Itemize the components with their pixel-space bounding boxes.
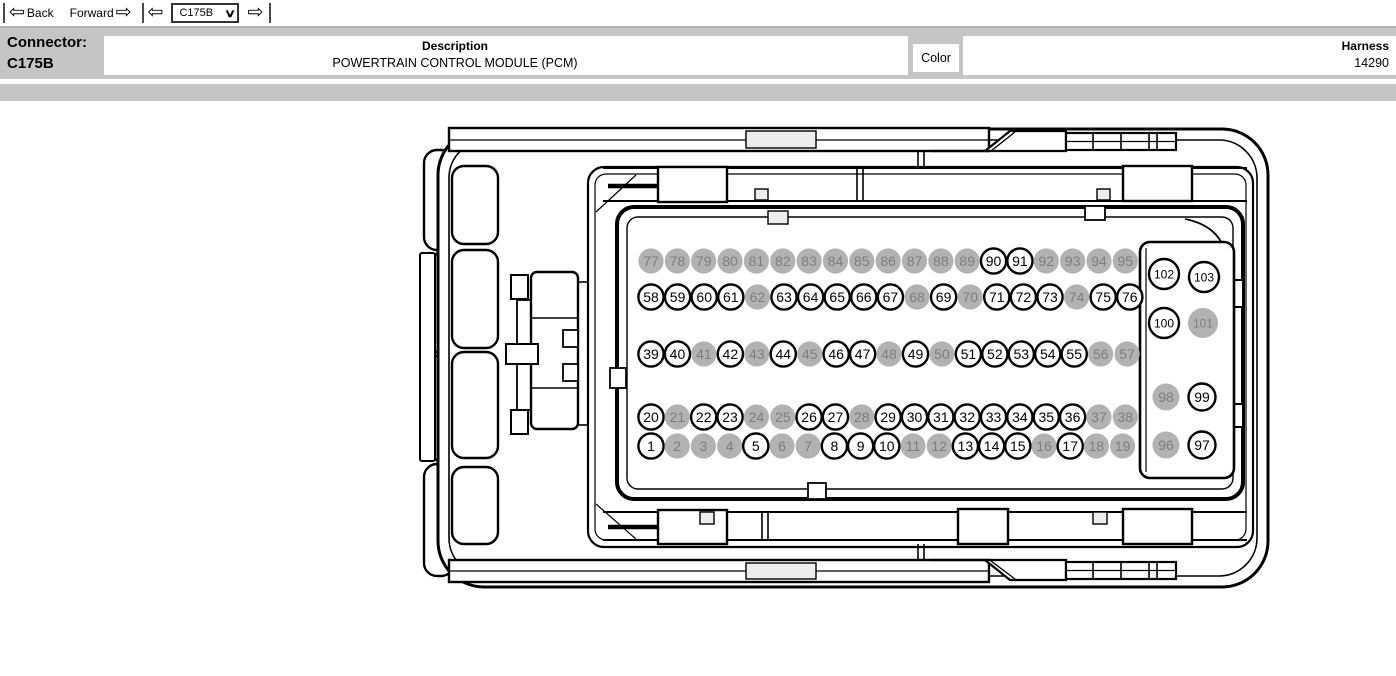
connector-label: Connector: bbox=[7, 32, 87, 53]
svg-text:69: 69 bbox=[936, 289, 952, 305]
back-label: Back bbox=[27, 6, 54, 20]
pin-96: 96 bbox=[1153, 432, 1180, 459]
pin-44: 44 bbox=[771, 341, 796, 366]
svg-text:12: 12 bbox=[931, 438, 947, 454]
pin-86: 86 bbox=[876, 248, 901, 273]
svg-text:76: 76 bbox=[1122, 289, 1138, 305]
pin-26: 26 bbox=[797, 404, 822, 429]
svg-text:100: 100 bbox=[1154, 316, 1174, 330]
svg-text:2: 2 bbox=[673, 438, 681, 454]
pin-25: 25 bbox=[770, 404, 795, 429]
pin-45: 45 bbox=[797, 341, 822, 366]
svg-text:55: 55 bbox=[1066, 346, 1082, 362]
svg-text:66: 66 bbox=[856, 289, 872, 305]
pin-74: 74 bbox=[1064, 284, 1089, 309]
description-value: POWERTRAIN CONTROL MODULE (PCM) bbox=[104, 56, 806, 70]
pin-97: 97 bbox=[1189, 432, 1216, 459]
svg-text:54: 54 bbox=[1040, 346, 1056, 362]
svg-text:30: 30 bbox=[907, 409, 923, 425]
pin-82: 82 bbox=[770, 248, 795, 273]
svg-text:75: 75 bbox=[1095, 289, 1111, 305]
pin-23: 23 bbox=[717, 404, 742, 429]
pin-14: 14 bbox=[979, 433, 1004, 458]
pin-50: 50 bbox=[929, 341, 954, 366]
pin-3: 3 bbox=[691, 433, 716, 458]
pin-91: 91 bbox=[1007, 248, 1032, 273]
pin-12: 12 bbox=[927, 433, 952, 458]
pin-32: 32 bbox=[955, 404, 980, 429]
svg-text:50: 50 bbox=[934, 346, 950, 362]
pin-35: 35 bbox=[1034, 404, 1059, 429]
pin-39: 39 bbox=[638, 341, 663, 366]
pin-69: 69 bbox=[931, 284, 956, 309]
svg-text:42: 42 bbox=[723, 346, 739, 362]
svg-text:32: 32 bbox=[959, 409, 975, 425]
color-box: Color bbox=[913, 44, 959, 72]
svg-text:43: 43 bbox=[749, 346, 765, 362]
forward-label: Forward bbox=[70, 6, 114, 20]
svg-text:28: 28 bbox=[854, 409, 870, 425]
svg-text:62: 62 bbox=[750, 289, 766, 305]
svg-text:64: 64 bbox=[803, 289, 819, 305]
svg-text:58: 58 bbox=[643, 289, 659, 305]
pin-77: 77 bbox=[638, 248, 663, 273]
svg-text:7: 7 bbox=[804, 438, 812, 454]
svg-text:15: 15 bbox=[1010, 438, 1026, 454]
pin-8: 8 bbox=[822, 433, 847, 458]
pin-2: 2 bbox=[665, 433, 690, 458]
svg-text:99: 99 bbox=[1194, 389, 1210, 405]
svg-text:48: 48 bbox=[881, 346, 897, 362]
back-button[interactable]: ⇦ Back bbox=[5, 4, 58, 22]
pin-88: 88 bbox=[928, 248, 953, 273]
svg-text:27: 27 bbox=[828, 409, 844, 425]
svg-text:85: 85 bbox=[854, 253, 870, 269]
pin-70: 70 bbox=[958, 284, 983, 309]
svg-text:35: 35 bbox=[1038, 409, 1054, 425]
pin-65: 65 bbox=[825, 284, 850, 309]
pin-62: 62 bbox=[745, 284, 770, 309]
pin-100: 100 bbox=[1149, 308, 1179, 338]
svg-text:17: 17 bbox=[1062, 438, 1078, 454]
svg-text:23: 23 bbox=[722, 409, 738, 425]
pin-27: 27 bbox=[823, 404, 848, 429]
svg-text:16: 16 bbox=[1036, 438, 1052, 454]
toolbar-separator bbox=[269, 3, 271, 23]
svg-text:40: 40 bbox=[670, 346, 686, 362]
forward-button[interactable]: Forward ⇨ bbox=[66, 4, 136, 22]
pin-20: 20 bbox=[638, 404, 663, 429]
svg-text:91: 91 bbox=[1012, 253, 1028, 269]
svg-text:8: 8 bbox=[831, 438, 839, 454]
pin-57: 57 bbox=[1115, 341, 1140, 366]
svg-text:74: 74 bbox=[1069, 289, 1085, 305]
pin-34: 34 bbox=[1007, 404, 1032, 429]
svg-text:39: 39 bbox=[643, 346, 659, 362]
pin-11: 11 bbox=[900, 433, 925, 458]
svg-text:73: 73 bbox=[1042, 289, 1058, 305]
pin-73: 73 bbox=[1037, 284, 1062, 309]
svg-text:71: 71 bbox=[989, 289, 1005, 305]
pin-24: 24 bbox=[744, 404, 769, 429]
svg-text:88: 88 bbox=[933, 253, 949, 269]
pin-72: 72 bbox=[1011, 284, 1036, 309]
pin-64: 64 bbox=[798, 284, 823, 309]
pin-71: 71 bbox=[984, 284, 1009, 309]
svg-text:38: 38 bbox=[1118, 409, 1134, 425]
pin-94: 94 bbox=[1086, 248, 1111, 273]
svg-text:101: 101 bbox=[1193, 316, 1213, 330]
svg-text:21: 21 bbox=[670, 409, 686, 425]
description-box: Description POWERTRAIN CONTROL MODULE (P… bbox=[104, 36, 908, 75]
svg-text:56: 56 bbox=[1093, 346, 1109, 362]
pin-92: 92 bbox=[1034, 248, 1059, 273]
pin-55: 55 bbox=[1062, 341, 1087, 366]
pin-21: 21 bbox=[665, 404, 690, 429]
pin-76: 76 bbox=[1117, 284, 1142, 309]
pin-52: 52 bbox=[982, 341, 1007, 366]
svg-text:61: 61 bbox=[723, 289, 739, 305]
svg-text:77: 77 bbox=[643, 253, 659, 269]
pin-67: 67 bbox=[878, 284, 903, 309]
svg-text:1: 1 bbox=[647, 438, 655, 454]
svg-text:89: 89 bbox=[959, 253, 975, 269]
connector-id: C175B bbox=[7, 53, 87, 74]
svg-text:60: 60 bbox=[696, 289, 712, 305]
connector-face-view: 7778798081828384858687888990919293949558… bbox=[0, 101, 1396, 676]
svg-text:63: 63 bbox=[776, 289, 792, 305]
harness-label: Harness bbox=[963, 39, 1389, 53]
pin-37: 37 bbox=[1086, 404, 1111, 429]
pin-15: 15 bbox=[1005, 433, 1030, 458]
pin-101: 101 bbox=[1188, 308, 1218, 338]
pin-36: 36 bbox=[1060, 404, 1085, 429]
pin-81: 81 bbox=[744, 248, 769, 273]
svg-text:9: 9 bbox=[857, 438, 865, 454]
svg-text:83: 83 bbox=[801, 253, 817, 269]
pin-83: 83 bbox=[797, 248, 822, 273]
svg-text:86: 86 bbox=[880, 253, 896, 269]
pin-41: 41 bbox=[691, 341, 716, 366]
svg-text:59: 59 bbox=[670, 289, 686, 305]
svg-text:95: 95 bbox=[1118, 253, 1134, 269]
connector-diagram: 7778798081828384858687888990919293949558… bbox=[0, 101, 1396, 676]
svg-text:103: 103 bbox=[1194, 270, 1214, 284]
svg-text:67: 67 bbox=[883, 289, 899, 305]
svg-text:84: 84 bbox=[828, 253, 844, 269]
pin-51: 51 bbox=[956, 341, 981, 366]
svg-text:3: 3 bbox=[700, 438, 708, 454]
svg-text:14: 14 bbox=[984, 438, 1000, 454]
pin-56: 56 bbox=[1088, 341, 1113, 366]
pin-17: 17 bbox=[1058, 433, 1083, 458]
svg-text:94: 94 bbox=[1091, 253, 1107, 269]
pin-42: 42 bbox=[718, 341, 743, 366]
toolbar: ⇦ Back Forward ⇨ ⇦ C175B ∨ ⇨ bbox=[0, 0, 1396, 28]
next-connector-icon: ⇨ bbox=[247, 4, 263, 22]
pin-68: 68 bbox=[904, 284, 929, 309]
connector-select[interactable]: C175B ∨ bbox=[171, 3, 239, 23]
svg-text:92: 92 bbox=[1038, 253, 1054, 269]
svg-text:11: 11 bbox=[906, 438, 921, 454]
pin-53: 53 bbox=[1009, 341, 1034, 366]
pin-85: 85 bbox=[849, 248, 874, 273]
pin-7: 7 bbox=[796, 433, 821, 458]
pin-19: 19 bbox=[1110, 433, 1135, 458]
pin-16: 16 bbox=[1031, 433, 1056, 458]
svg-text:19: 19 bbox=[1115, 438, 1131, 454]
svg-text:51: 51 bbox=[961, 346, 977, 362]
svg-text:45: 45 bbox=[802, 346, 818, 362]
svg-text:34: 34 bbox=[1012, 409, 1028, 425]
svg-text:81: 81 bbox=[749, 253, 765, 269]
forward-icon: ⇨ bbox=[116, 4, 132, 22]
description-label: Description bbox=[104, 39, 806, 53]
svg-text:78: 78 bbox=[670, 253, 686, 269]
pin-61: 61 bbox=[718, 284, 743, 309]
pin-60: 60 bbox=[692, 284, 717, 309]
svg-text:6: 6 bbox=[778, 438, 786, 454]
pin-49: 49 bbox=[903, 341, 928, 366]
pin-6: 6 bbox=[769, 433, 794, 458]
pin-66: 66 bbox=[851, 284, 876, 309]
svg-text:31: 31 bbox=[933, 409, 949, 425]
svg-text:98: 98 bbox=[1158, 389, 1174, 405]
harness-value: 14290 bbox=[963, 56, 1389, 70]
svg-text:13: 13 bbox=[958, 438, 974, 454]
svg-text:102: 102 bbox=[1154, 267, 1174, 281]
connector-header: Connector: C175B Description POWERTRAIN … bbox=[0, 28, 1396, 79]
pin-84: 84 bbox=[823, 248, 848, 273]
pin-59: 59 bbox=[665, 284, 690, 309]
svg-text:49: 49 bbox=[908, 346, 924, 362]
connector-latch-assembly bbox=[506, 272, 588, 434]
svg-text:37: 37 bbox=[1091, 409, 1107, 425]
svg-text:82: 82 bbox=[775, 253, 791, 269]
pin-90: 90 bbox=[981, 248, 1006, 273]
pin-18: 18 bbox=[1084, 433, 1109, 458]
svg-text:29: 29 bbox=[880, 409, 896, 425]
svg-text:72: 72 bbox=[1016, 289, 1032, 305]
svg-text:52: 52 bbox=[987, 346, 1003, 362]
svg-text:70: 70 bbox=[962, 289, 978, 305]
connector-title: Connector: C175B bbox=[7, 32, 87, 74]
svg-text:68: 68 bbox=[909, 289, 925, 305]
connector-select-value: C175B bbox=[179, 7, 213, 19]
connector-left-tabs bbox=[452, 166, 498, 544]
svg-text:80: 80 bbox=[722, 253, 738, 269]
pin-98: 98 bbox=[1153, 384, 1180, 411]
pin-40: 40 bbox=[665, 341, 690, 366]
svg-text:53: 53 bbox=[1014, 346, 1030, 362]
pin-99: 99 bbox=[1189, 384, 1216, 411]
pin-9: 9 bbox=[848, 433, 873, 458]
svg-text:22: 22 bbox=[696, 409, 712, 425]
pin-78: 78 bbox=[665, 248, 690, 273]
pin-46: 46 bbox=[824, 341, 849, 366]
svg-text:25: 25 bbox=[775, 409, 791, 425]
pin-63: 63 bbox=[771, 284, 796, 309]
pin-89: 89 bbox=[955, 248, 980, 273]
pin-47: 47 bbox=[850, 341, 875, 366]
svg-text:79: 79 bbox=[696, 253, 712, 269]
pin-10: 10 bbox=[874, 433, 899, 458]
svg-text:90: 90 bbox=[986, 253, 1002, 269]
pin-13: 13 bbox=[953, 433, 978, 458]
pin-30: 30 bbox=[902, 404, 927, 429]
pin-93: 93 bbox=[1060, 248, 1085, 273]
svg-text:57: 57 bbox=[1119, 346, 1135, 362]
svg-text:24: 24 bbox=[749, 409, 765, 425]
back-icon: ⇦ bbox=[9, 4, 25, 22]
pin-102: 102 bbox=[1149, 259, 1179, 289]
pin-33: 33 bbox=[981, 404, 1006, 429]
pin-31: 31 bbox=[928, 404, 953, 429]
svg-text:33: 33 bbox=[986, 409, 1002, 425]
svg-text:96: 96 bbox=[1158, 437, 1174, 453]
svg-text:5: 5 bbox=[752, 438, 760, 454]
svg-text:93: 93 bbox=[1065, 253, 1081, 269]
svg-text:87: 87 bbox=[907, 253, 923, 269]
pin-87: 87 bbox=[902, 248, 927, 273]
pin-95: 95 bbox=[1113, 248, 1138, 273]
harness-box: Harness 14290 bbox=[963, 36, 1396, 75]
pin-1: 1 bbox=[638, 433, 663, 458]
pin-29: 29 bbox=[876, 404, 901, 429]
pin-28: 28 bbox=[849, 404, 874, 429]
svg-text:44: 44 bbox=[775, 346, 791, 362]
pin-22: 22 bbox=[691, 404, 716, 429]
previous-connector-icon: ⇦ bbox=[148, 4, 164, 22]
svg-text:36: 36 bbox=[1065, 409, 1081, 425]
pin-4: 4 bbox=[717, 433, 742, 458]
pin-5: 5 bbox=[743, 433, 768, 458]
svg-text:97: 97 bbox=[1194, 437, 1210, 453]
svg-text:18: 18 bbox=[1089, 438, 1105, 454]
pin-54: 54 bbox=[1035, 341, 1060, 366]
chevron-down-icon: ∨ bbox=[224, 7, 236, 20]
previous-connector-button[interactable]: ⇦ bbox=[144, 4, 168, 22]
svg-text:41: 41 bbox=[696, 346, 712, 362]
next-connector-button[interactable]: ⇨ bbox=[243, 4, 267, 22]
pin-38: 38 bbox=[1113, 404, 1138, 429]
pin-80: 80 bbox=[717, 248, 742, 273]
header-substrip bbox=[0, 84, 1396, 101]
pin-48: 48 bbox=[876, 341, 901, 366]
svg-text:20: 20 bbox=[643, 409, 659, 425]
pin-43: 43 bbox=[744, 341, 769, 366]
svg-text:4: 4 bbox=[726, 438, 734, 454]
pin-75: 75 bbox=[1091, 284, 1116, 309]
pin-79: 79 bbox=[691, 248, 716, 273]
pin-103: 103 bbox=[1189, 262, 1219, 292]
svg-text:65: 65 bbox=[829, 289, 845, 305]
svg-text:26: 26 bbox=[801, 409, 817, 425]
svg-text:10: 10 bbox=[879, 438, 895, 454]
svg-text:46: 46 bbox=[828, 346, 844, 362]
svg-text:47: 47 bbox=[855, 346, 871, 362]
pin-58: 58 bbox=[638, 284, 663, 309]
